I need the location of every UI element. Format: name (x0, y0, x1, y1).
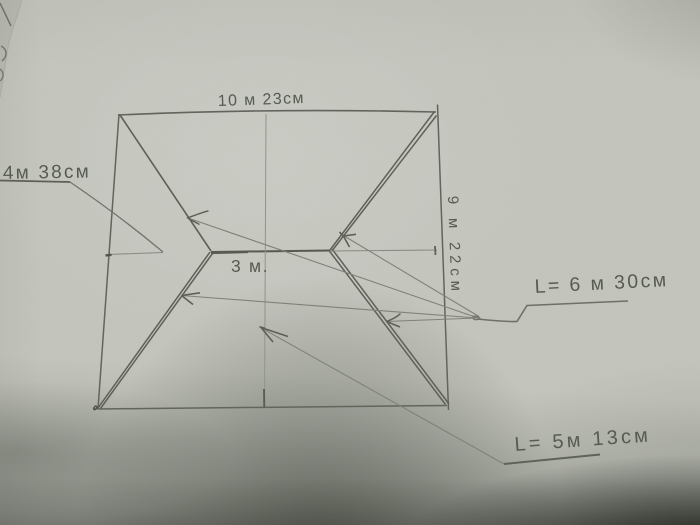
svg-text:3 м.: 3 м. (231, 256, 269, 276)
svg-text:10 м 23см: 10 м 23см (218, 90, 306, 110)
svg-text:4м 38см: 4м 38см (3, 161, 91, 184)
svg-text:L= 5м 13см: L= 5м 13см (514, 424, 652, 455)
svg-text:9 м 22см: 9 м 22см (444, 196, 464, 296)
svg-text:L= 6 м 30см: L= 6 м 30см (534, 269, 669, 298)
